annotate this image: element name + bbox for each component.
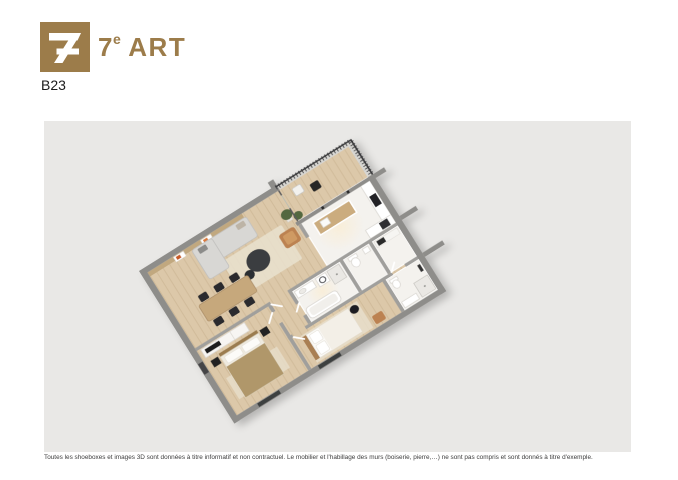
brand-title: 7eART — [98, 34, 186, 60]
brand-word: ART — [128, 32, 186, 62]
apartment-3d-plan — [135, 121, 466, 424]
brand-superscript: e — [113, 31, 121, 47]
logo-seven-crossbar — [57, 49, 80, 55]
plan-sheet-page: 7eART B23 — [0, 0, 678, 480]
brand-header: 7eART — [40, 22, 186, 72]
unit-reference: B23 — [41, 78, 66, 93]
floorplan-image — [44, 121, 631, 452]
7e-art-logo-icon — [40, 22, 90, 72]
disclaimer: Toutes les shoeboxes et images 3D sont d… — [44, 454, 632, 462]
brand-number: 7 — [98, 32, 113, 62]
floorplan-svg — [44, 121, 631, 452]
